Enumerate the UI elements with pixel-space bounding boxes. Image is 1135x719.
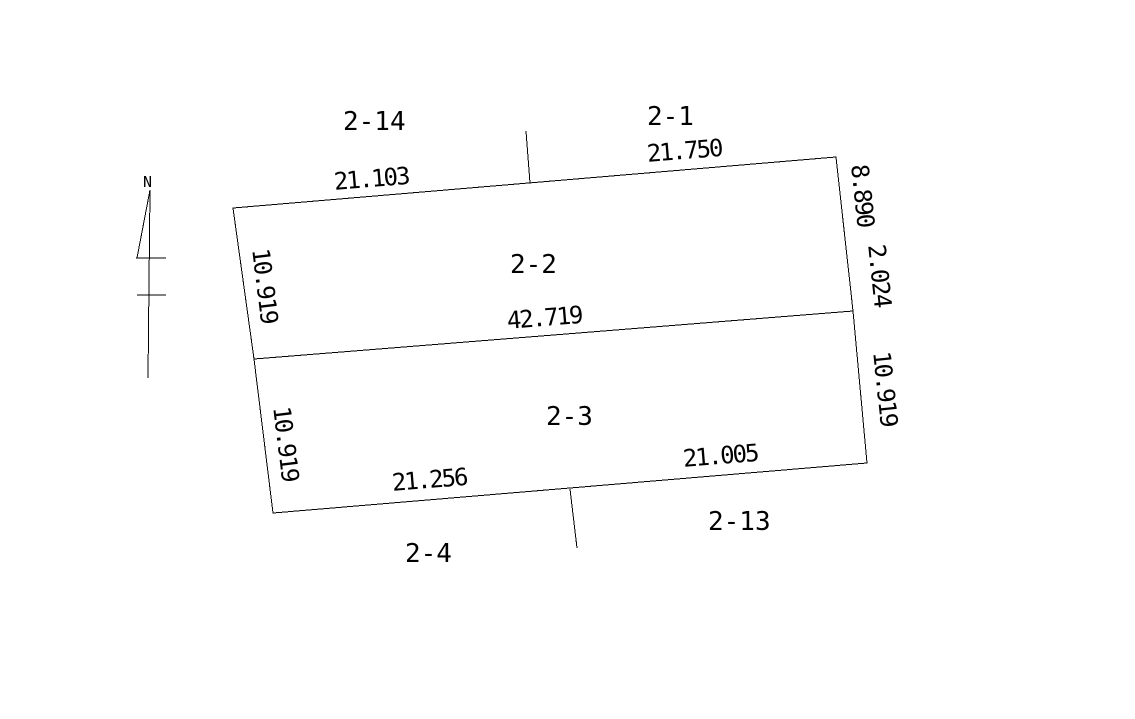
north-arrow-label: N [143, 175, 152, 190]
dimension-bottom-right: 21.005 [682, 441, 758, 471]
neighbor-label-top-left: 2-14 [343, 109, 406, 135]
dimension-top-left: 21.103 [333, 164, 409, 194]
neighbor-label-top-right: 2-1 [647, 104, 694, 130]
bottom-boundary-tick [570, 489, 577, 548]
dimension-divider: 42.719 [506, 303, 582, 333]
north-arrow-icon [136, 190, 166, 378]
dimension-top-right: 21.750 [646, 136, 722, 166]
parcel-label-lower: 2-3 [546, 404, 593, 430]
neighbor-label-bottom-left: 2-4 [405, 541, 452, 567]
neighbor-label-bottom-right: 2-13 [708, 509, 771, 535]
parcel-label-upper: 2-2 [510, 252, 557, 278]
top-boundary-tick [526, 131, 530, 183]
survey-linework [0, 0, 1135, 719]
dimension-right-upper-sub: 2.024 [864, 243, 894, 307]
dimension-bottom-left: 21.256 [391, 465, 467, 495]
survey-drawing: N 2-14 2-1 2-4 2-13 2-2 2-3 21.103 21.75… [0, 0, 1135, 719]
dimension-right-upper: 8.890 [847, 163, 877, 227]
dimension-right-lower: 10.919 [869, 350, 901, 427]
